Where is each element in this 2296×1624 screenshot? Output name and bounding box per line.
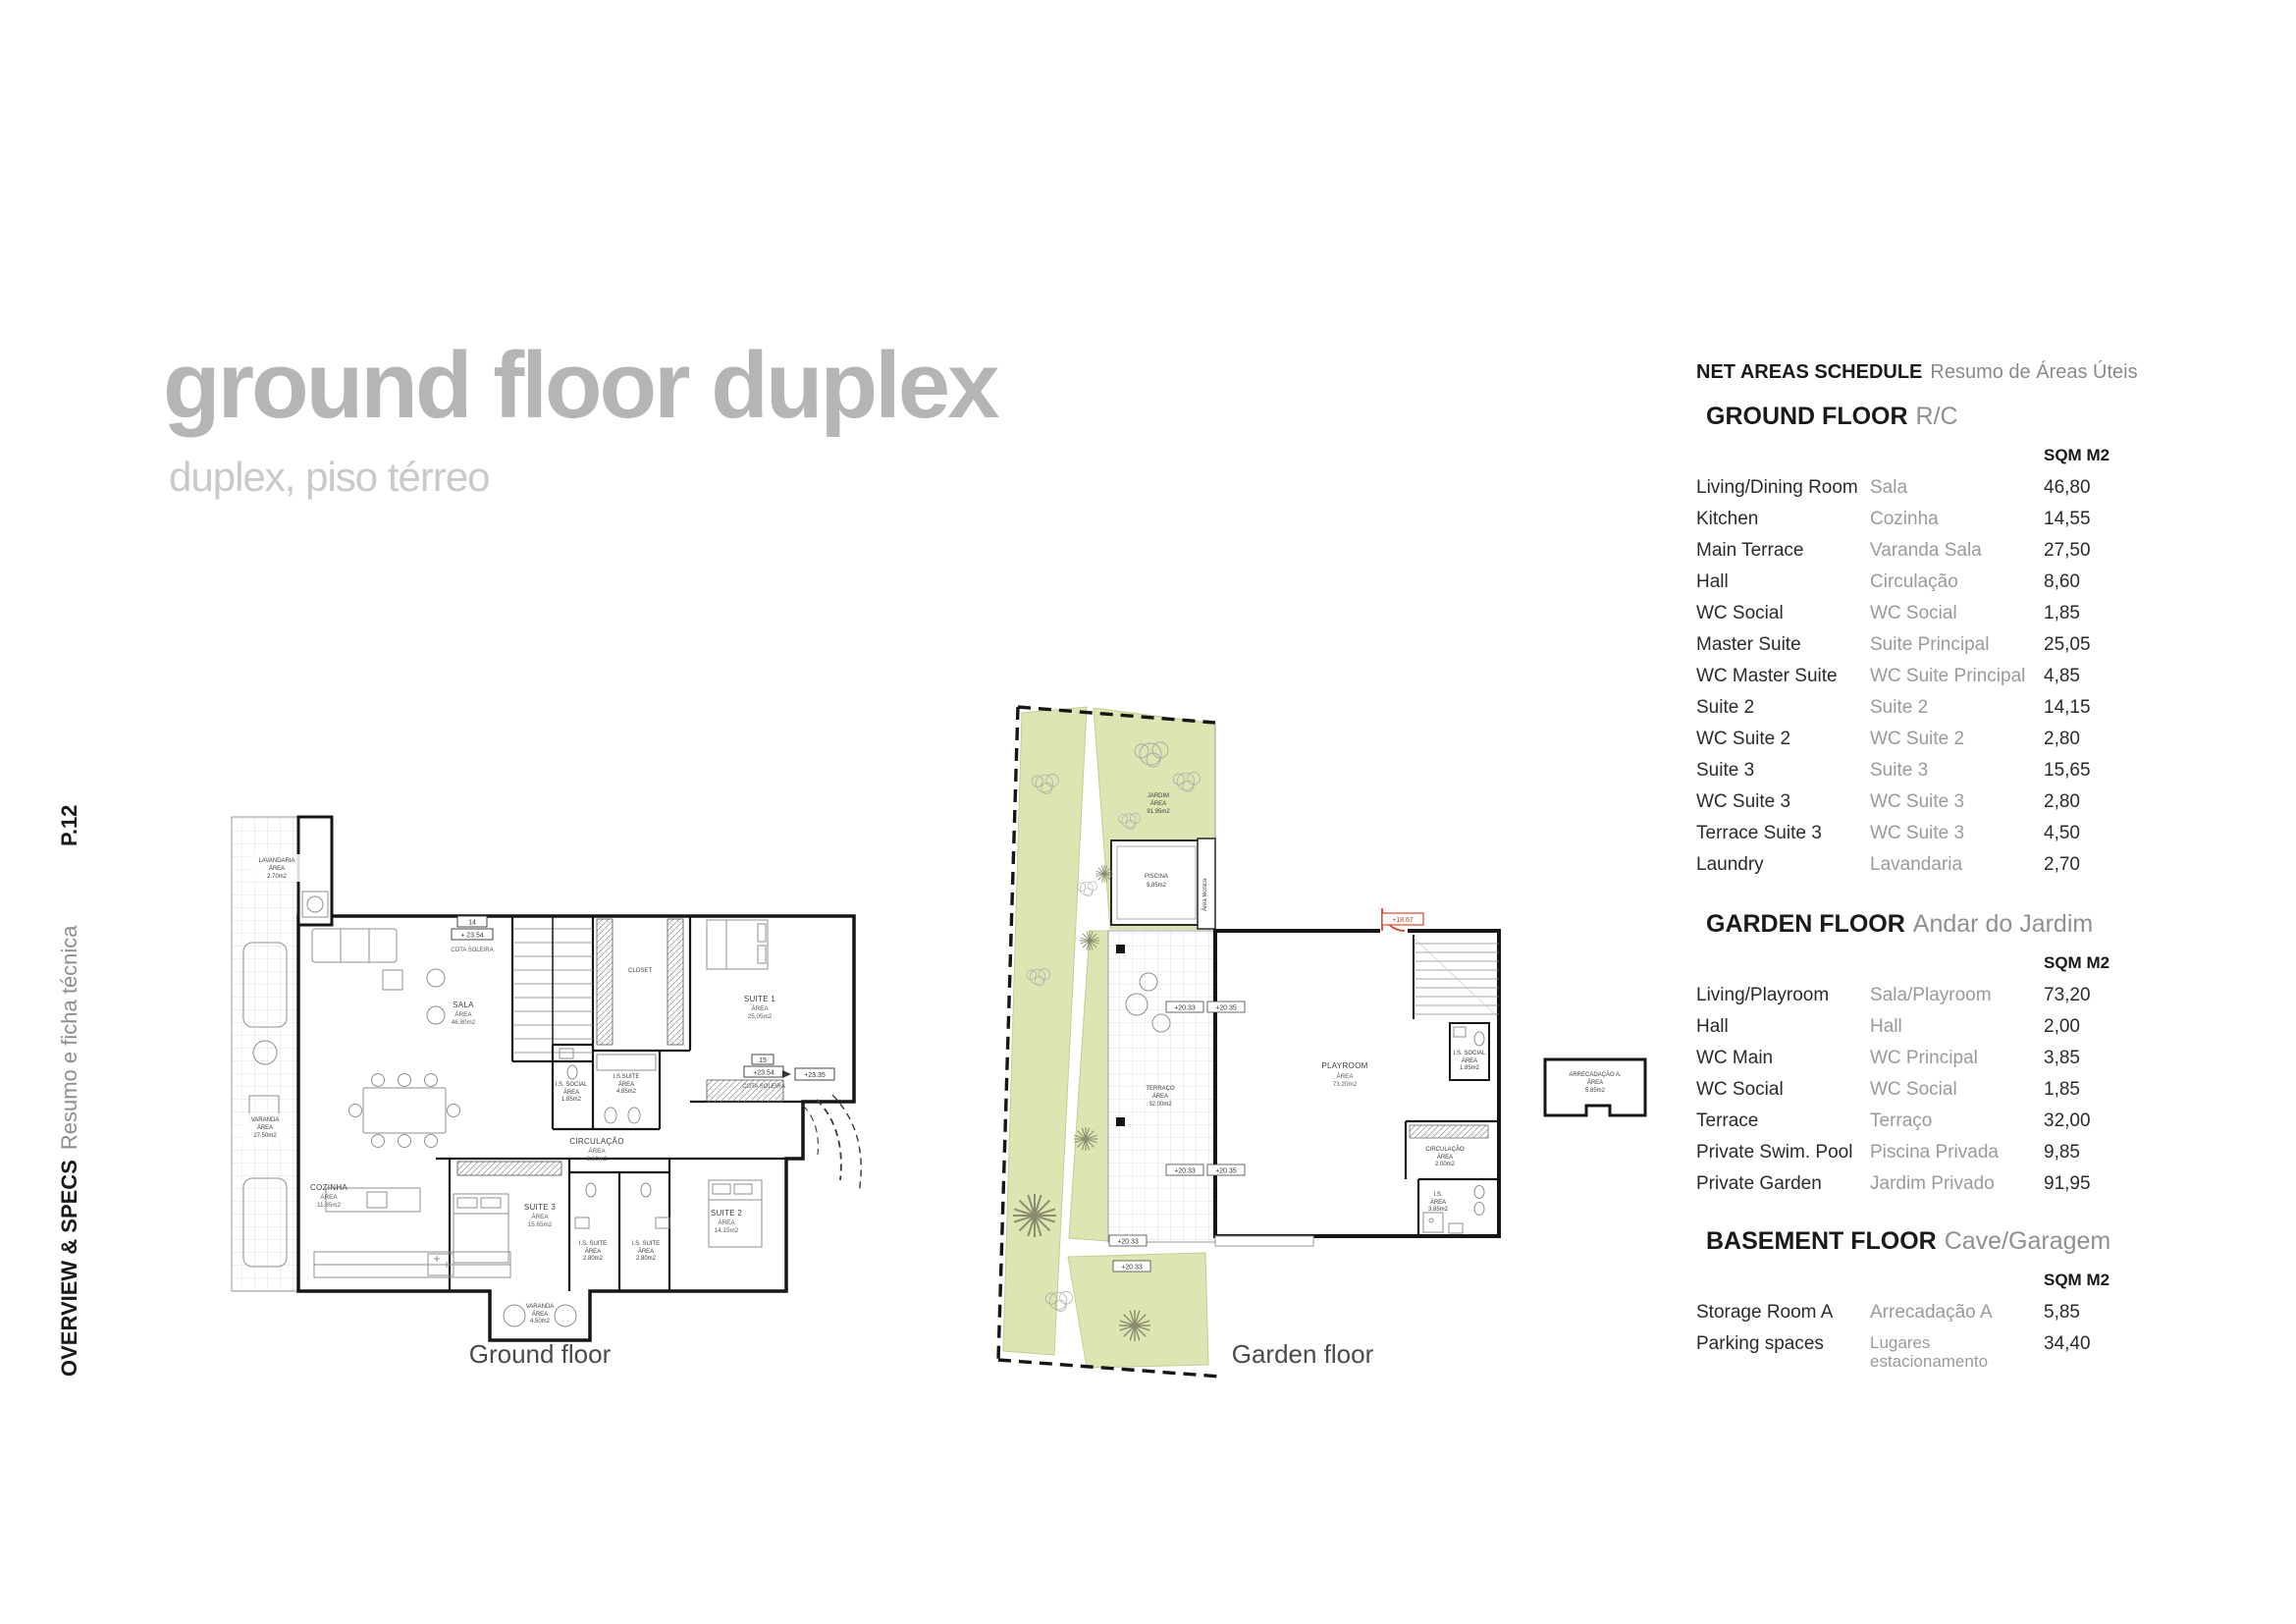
area-row: Suite 2Suite 214,15 [1696,697,2112,729]
area-row: Terrace Suite 3WC Suite 34,50 [1696,823,2112,854]
svg-text:+20.33: +20.33 [1117,1239,1139,1246]
area-row: WC SocialWC Social1,85 [1696,1079,2112,1110]
svg-text:2.70m2: 2.70m2 [267,874,288,880]
svg-text:I.S. SUITE: I.S. SUITE [632,1241,660,1247]
unit-header: SQM M2 [1696,1271,2112,1290]
svg-text:ÁREA: ÁREA [269,865,285,872]
svg-text:CIRCULAÇÃO: CIRCULAÇÃO [1425,1146,1465,1153]
garden-floor-plan: PISCINA 9,85m2 Área técnica +18.67 +20.3… [991,677,1659,1384]
garden-floor-caption: Garden floor [1209,1339,1396,1370]
svg-text:32.00m2: 32.00m2 [1148,1102,1172,1108]
svg-text:1.85m2: 1.85m2 [1460,1065,1480,1071]
schedule-title: NET AREAS SCHEDULEResumo de Áreas Úteis [1696,361,2112,384]
area-row: TerraceTerraço32,00 [1696,1110,2112,1142]
section-heading: GROUND FLOORR/C [1696,403,2112,431]
svg-text:+20.35: +20.35 [1215,1005,1237,1012]
area-row: Living/PlayroomSala/Playroom73,20 [1696,985,2112,1016]
ground-floor-caption: Ground floor [447,1339,633,1370]
svg-text:25.05m2: 25.05m2 [748,1013,773,1020]
svg-text:73.20m2: 73.20m2 [1333,1081,1358,1088]
svg-text:CLOSET: CLOSET [628,968,652,974]
area-row: WC Suite 2WC Suite 22,80 [1696,729,2112,760]
area-row: HallCirculação8,60 [1696,571,2112,603]
svg-text:ÁREA: ÁREA [1336,1071,1354,1080]
svg-text:8.60m2: 8.60m2 [586,1156,608,1163]
area-row: Main TerraceVaranda Sala27,50 [1696,540,2112,571]
area-row: Private Swim. PoolPiscina Privada9,85 [1696,1142,2112,1173]
svg-text:2.80m2: 2.80m2 [636,1256,657,1262]
svg-text:ARRECADAÇÃO A.: ARRECADAÇÃO A. [1569,1071,1622,1078]
sidebar-section-label: OVERVIEW & SPECSResumo e ficha técnica [57,925,82,1377]
svg-text:SUITE 3: SUITE 3 [524,1203,557,1212]
svg-text:ÁREA: ÁREA [751,1003,769,1012]
svg-text:VARANDA: VARANDA [251,1117,280,1123]
area-row: WC Suite 3WC Suite 32,80 [1696,791,2112,823]
area-row: HallHall2,00 [1696,1016,2112,1048]
area-row: Parking spacesLugares estacionamento34,4… [1696,1333,2112,1371]
svg-text:2.00m2: 2.00m2 [1435,1162,1456,1167]
svg-text:+20.33: +20.33 [1174,1005,1196,1012]
unit-header: SQM M2 [1696,446,2112,465]
area-row: KitchenCozinha14,55 [1696,509,2112,540]
svg-text:VARANDA: VARANDA [526,1304,555,1310]
svg-text:ÁREA: ÁREA [1437,1154,1453,1161]
ground-floor-plan: 14 + 23.54 COTA SOLEIRA 15 +23.54 COTA S… [216,805,883,1375]
page-number: P.12 [57,805,82,846]
svg-text:46.80m2: 46.80m2 [452,1019,476,1026]
section-basement-floor: BASEMENT FLOORCave/Garagem SQM M2 Storag… [1696,1227,2112,1371]
svg-text:ÁREA: ÁREA [638,1248,654,1255]
svg-text:COTA SOLEIRA: COTA SOLEIRA [451,947,494,953]
area-row: WC MainWC Principal3,85 [1696,1048,2112,1079]
section-garden-floor: GARDEN FLOORAndar do Jardim SQM M2 Livin… [1696,910,2112,1205]
area-row: Living/Dining RoomSala46,80 [1696,477,2112,509]
area-row: WC SocialWC Social1,85 [1696,603,2112,634]
svg-text:4.50m2: 4.50m2 [530,1319,551,1325]
room-label-closet: CLOSET [628,968,652,974]
sidebar-label-pt: Resumo e ficha técnica [57,925,81,1150]
svg-text:ÁREA: ÁREA [588,1146,606,1155]
svg-text:PISCINA: PISCINA [1145,874,1168,880]
schedule-title-en: NET AREAS SCHEDULE [1696,361,1922,383]
svg-text:ÁREA: ÁREA [1150,800,1166,807]
svg-text:LAVANDARIA: LAVANDARIA [258,858,294,864]
svg-text:15.65m2: 15.65m2 [528,1221,553,1228]
svg-text:ÁREA: ÁREA [563,1089,579,1096]
svg-text:I.S.SUITE: I.S.SUITE [614,1074,640,1080]
area-row: Suite 3Suite 315,65 [1696,760,2112,791]
page-subtitle: duplex, piso térreo [169,454,490,501]
area-row: Private GardenJardim Privado91,95 [1696,1173,2112,1205]
area-row: Master SuiteSuite Principal25,05 [1696,634,2112,666]
svg-text:1.85m2: 1.85m2 [561,1097,582,1103]
svg-text:ÁREA: ÁREA [1462,1057,1477,1064]
svg-text:COTA SOLEIRA: COTA SOLEIRA [742,1084,785,1090]
svg-text:SALA: SALA [453,1001,474,1009]
svg-text:PLAYROOM: PLAYROOM [1321,1061,1367,1070]
svg-text:SUITE 1: SUITE 1 [744,995,776,1003]
svg-text:ÁREA: ÁREA [1587,1079,1603,1086]
section-ground-floor: GROUND FLOORR/C SQM M2 Living/Dining Roo… [1696,403,2112,886]
unit-header: SQM M2 [1696,953,2112,973]
svg-text:+23.35: +23.35 [804,1072,826,1079]
room-label-varanda: VARANDA ÁREA 27.50m2 [241,1113,289,1141]
schedule-title-pt: Resumo de Áreas Úteis [1930,361,2137,383]
svg-text:11.85m2: 11.85m2 [317,1202,342,1209]
svg-text:ÁREA: ÁREA [1152,1093,1168,1100]
svg-text:14.15m2: 14.15m2 [715,1227,739,1234]
svg-text:I.S. SUITE: I.S. SUITE [579,1241,607,1247]
page-title: ground floor duplex [163,334,997,438]
svg-text:ÁREA: ÁREA [1430,1199,1446,1206]
svg-text:+20.33: +20.33 [1121,1265,1143,1272]
svg-text:4.85m2: 4.85m2 [616,1089,637,1095]
svg-text:5.85m2: 5.85m2 [1585,1088,1606,1094]
svg-text:ÁREA: ÁREA [454,1009,472,1018]
room-label-lavandaria: LAVANDARIA ÁREA 2.70m2 [253,854,300,882]
net-areas-schedule: NET AREAS SCHEDULEResumo de Áreas Úteis … [1696,361,2112,1371]
svg-text:I.S.: I.S. [1433,1192,1442,1198]
svg-text:14: 14 [468,920,476,927]
tech-area-label: Área técnica [1201,878,1208,911]
area-row: Storage Room AArrecadação A5,85 [1696,1302,2112,1333]
svg-text:+20.33: +20.33 [1174,1168,1196,1175]
area-row: LaundryLavandaria2,70 [1696,854,2112,886]
svg-text:+ 23.54: + 23.54 [460,933,484,940]
svg-text:+18.67: +18.67 [1392,917,1414,924]
svg-text:ÁREA: ÁREA [532,1311,548,1318]
svg-text:ÁREA: ÁREA [531,1212,549,1220]
svg-text:3.85m2: 3.85m2 [1428,1207,1449,1213]
svg-text:ÁREA: ÁREA [257,1124,273,1131]
svg-text:15: 15 [759,1057,767,1064]
entry-level-marker: +18.67 [1382,913,1423,925]
svg-text:I.S. SOCIAL: I.S. SOCIAL [1454,1051,1486,1056]
section-heading: GARDEN FLOORAndar do Jardim [1696,910,2112,939]
svg-text:ÁREA: ÁREA [320,1192,338,1201]
area-row: WC Master SuiteWC Suite Principal4,85 [1696,666,2112,697]
section-heading: BASEMENT FLOORCave/Garagem [1696,1227,2112,1256]
svg-text:CIRCULAÇÃO: CIRCULAÇÃO [569,1137,623,1146]
svg-text:91.95m2: 91.95m2 [1147,809,1170,815]
svg-text:27.50m2: 27.50m2 [253,1133,277,1139]
svg-text:SUITE 2: SUITE 2 [711,1209,743,1218]
sidebar-label-en: OVERVIEW & SPECS [57,1160,81,1377]
svg-text:2.80m2: 2.80m2 [583,1256,604,1262]
svg-text:COZINHA: COZINHA [310,1183,347,1192]
svg-text:+20.35: +20.35 [1215,1168,1237,1175]
svg-text:I.S. SOCIAL: I.S. SOCIAL [556,1082,588,1088]
svg-text:ÁREA: ÁREA [718,1218,735,1226]
svg-text:JARDIM: JARDIM [1148,793,1169,799]
svg-text:9,85m2: 9,85m2 [1147,883,1167,889]
svg-text:ÁREA: ÁREA [618,1081,634,1088]
svg-text:TERRAÇO: TERRAÇO [1146,1086,1175,1092]
svg-text:ÁREA: ÁREA [585,1248,601,1255]
svg-text:+23.54: +23.54 [753,1070,774,1077]
